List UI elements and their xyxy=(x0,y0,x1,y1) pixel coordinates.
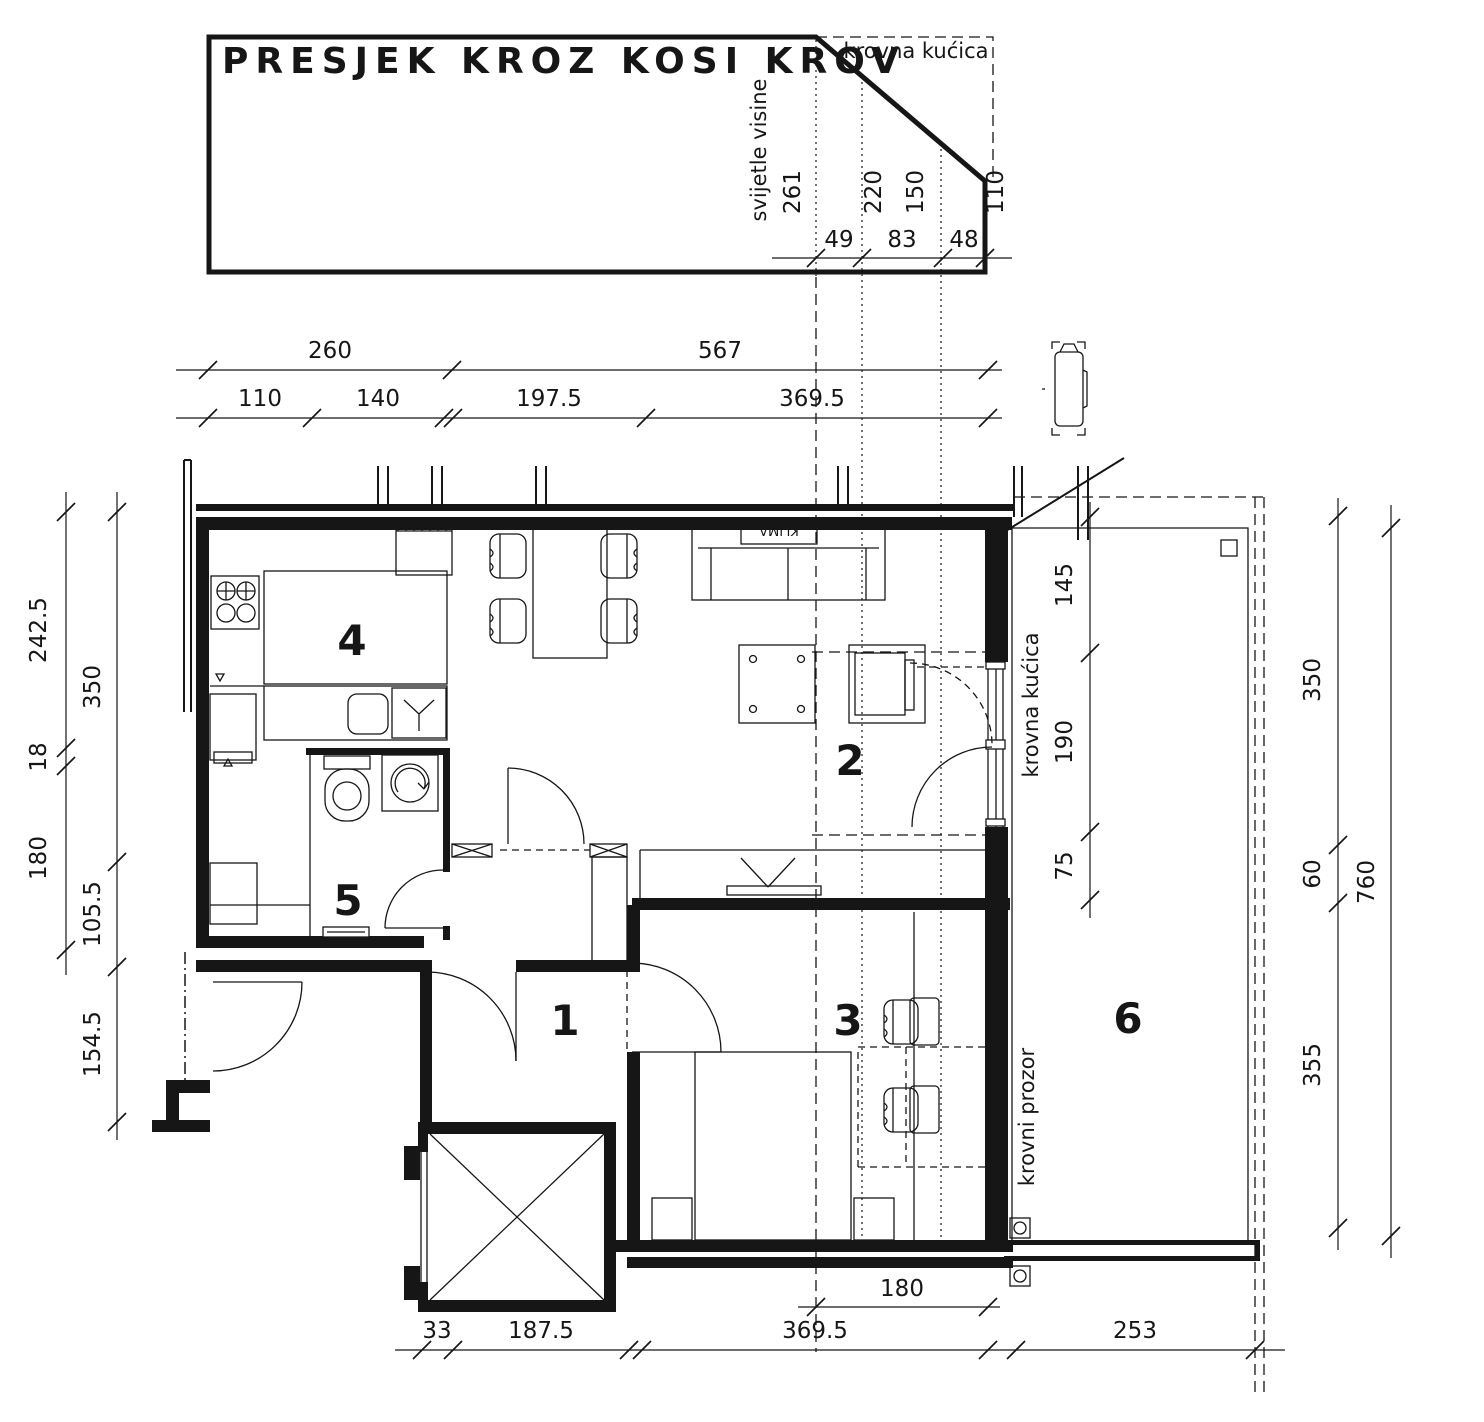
washing-machine xyxy=(382,755,438,811)
section-width-48: 48 xyxy=(949,227,978,253)
roof-edge-band xyxy=(196,504,1013,511)
wall-left xyxy=(196,517,209,948)
door-landing xyxy=(213,982,302,1071)
coffee-table xyxy=(739,645,815,723)
wall-bath-right-upper xyxy=(443,755,450,872)
wall-hall-bedroom-upper xyxy=(627,905,640,968)
stove xyxy=(211,576,259,629)
leader-line xyxy=(988,458,1124,542)
dim-197-5: 197.5 xyxy=(516,386,582,412)
bottom-dimension-chain: 33 187.5 369.5 253 180 xyxy=(395,1276,1285,1359)
dim-105-5: 105.5 xyxy=(80,881,106,947)
room-number-bath: 5 xyxy=(333,876,362,925)
nightstand xyxy=(854,1198,894,1240)
section-height-261: 261 xyxy=(780,170,806,214)
dim-355: 355 xyxy=(1300,1043,1326,1087)
railing-end xyxy=(1255,1240,1260,1261)
wall-hall-bedroom-lower xyxy=(627,1052,640,1252)
terrace: 145 190 75 krovna kućica krovni prozor xyxy=(1004,497,1264,1398)
bedroom xyxy=(652,912,985,1240)
kitchen xyxy=(210,517,452,936)
fridge xyxy=(210,674,256,766)
wardrobe-rod xyxy=(727,858,821,895)
doors xyxy=(213,658,1005,1071)
dining-table xyxy=(533,521,607,658)
wall-bath-top xyxy=(306,748,450,755)
desk-chair xyxy=(884,1088,918,1132)
railing-post xyxy=(1010,1218,1030,1238)
door-bathroom xyxy=(385,870,443,928)
threshold-mat xyxy=(323,927,369,937)
toilet xyxy=(324,756,370,821)
walls xyxy=(152,504,1013,1268)
dim-180-bedroom: 180 xyxy=(880,1276,924,1302)
dim-187-5: 187.5 xyxy=(508,1318,574,1344)
wall-right-upper xyxy=(985,517,1008,662)
elevator-shaft xyxy=(404,1122,616,1312)
dim-154-5: 154.5 xyxy=(80,1011,106,1077)
cabinet xyxy=(210,863,257,924)
room-number-bedroom: 3 xyxy=(833,996,862,1045)
dim-180-left: 180 xyxy=(26,836,52,880)
railing-post xyxy=(1010,1266,1030,1286)
dim-110: 110 xyxy=(238,386,282,412)
door-corridor xyxy=(508,768,584,844)
dim-140: 140 xyxy=(356,386,400,412)
landing-wall-1 xyxy=(166,1080,210,1093)
floor-plan-canvas: PRESJEK KROZ KOSI KROV krovna kućica svi… xyxy=(0,0,1484,1422)
dim-145: 145 xyxy=(1052,563,1078,607)
lintel-marker-left xyxy=(452,844,492,857)
dim-33: 33 xyxy=(422,1318,451,1344)
section-width-83: 83 xyxy=(887,227,916,253)
nightstand xyxy=(652,1198,692,1240)
section-heights-label: svijetle visine xyxy=(747,79,771,222)
boiler-symbol xyxy=(1042,342,1087,435)
dim-350-left: 350 xyxy=(80,665,106,709)
landing-wall-2 xyxy=(166,1093,179,1120)
armchair xyxy=(849,645,925,723)
roof-zone-dashed xyxy=(858,1047,985,1167)
roof-window-marks xyxy=(184,458,1124,712)
shaft-cross xyxy=(430,1134,604,1300)
wall-closet-bedroom xyxy=(632,898,1010,910)
wall-building-bottom xyxy=(627,1257,1013,1268)
lintel-marker-right xyxy=(590,844,627,857)
dim-190: 190 xyxy=(1052,720,1078,764)
top-dimension-chains: 260 567 110 140 197.5 369.5 xyxy=(176,338,1002,427)
section-width-49: 49 xyxy=(824,227,853,253)
label-krovna-kucica-plan: krovna kućica xyxy=(1019,632,1043,777)
wall-hall-left xyxy=(420,960,432,1122)
dim-260: 260 xyxy=(308,338,352,364)
dim-350-right: 350 xyxy=(1300,658,1326,702)
section-height-110: 110 xyxy=(983,170,1009,214)
dining-chair xyxy=(490,534,526,578)
label-klima: KLIMA xyxy=(759,522,799,537)
desk-chair xyxy=(884,1000,918,1044)
wall-bath-bottom xyxy=(196,936,424,948)
dim-75: 75 xyxy=(1052,851,1078,880)
wall-bath-right-lower xyxy=(443,926,450,940)
section-height-150: 150 xyxy=(903,170,929,214)
hall-closet xyxy=(592,850,985,1050)
door-terrace-french xyxy=(910,658,1005,830)
wall-entry-right xyxy=(516,960,640,972)
dim-18: 18 xyxy=(26,742,52,771)
tap-symbol xyxy=(392,688,446,738)
right-dimension-chains: 350 60 355 760 xyxy=(1300,498,1400,1258)
dining-chair xyxy=(490,599,526,643)
closet xyxy=(592,857,627,967)
wall-bedroom-bottom xyxy=(616,1240,1013,1252)
living-room: KLIMA xyxy=(692,518,985,835)
section-height-220: 220 xyxy=(861,170,887,214)
section-width-dims: 49 83 48 xyxy=(772,227,1012,267)
wall-entry-left xyxy=(196,960,424,972)
dining-set xyxy=(490,521,637,658)
section-dormer-label: krovna kućica xyxy=(843,39,988,63)
roof-window-marker xyxy=(1221,540,1237,556)
door-entry xyxy=(427,972,516,1061)
landing-wall-3 xyxy=(152,1120,210,1132)
roof-section-drawing: PRESJEK KROZ KOSI KROV krovna kućica svi… xyxy=(209,37,1012,272)
dim-369-5-top: 369.5 xyxy=(779,386,845,412)
dim-60: 60 xyxy=(1300,859,1326,888)
bed xyxy=(695,1052,851,1240)
wall-right-lower xyxy=(985,827,1008,1248)
dim-242-5: 242.5 xyxy=(26,597,52,663)
dim-760: 760 xyxy=(1354,860,1380,904)
dim-567: 567 xyxy=(698,338,742,364)
left-dimension-chains: 242.5 18 180 350 105.5 154.5 xyxy=(26,492,126,1140)
label-krovni-prozor: krovni prozor xyxy=(1015,1047,1039,1186)
architectural-drawing: PRESJEK KROZ KOSI KROV krovna kućica svi… xyxy=(0,0,1484,1422)
room-number-hall: 1 xyxy=(550,996,579,1045)
door-bedroom xyxy=(632,963,721,1052)
dim-253: 253 xyxy=(1113,1318,1157,1344)
railing-outer xyxy=(1004,1240,1260,1245)
room-number-living: 2 xyxy=(835,736,864,785)
dim-369-5-bottom: 369.5 xyxy=(782,1318,848,1344)
sink xyxy=(348,694,388,734)
section-title: PRESJEK KROZ KOSI KROV xyxy=(222,41,906,82)
room-number-kitchen: 4 xyxy=(337,616,366,665)
room-number-terrace: 6 xyxy=(1113,994,1142,1043)
wall-top xyxy=(196,517,1012,530)
railing-inner xyxy=(1004,1256,1260,1261)
